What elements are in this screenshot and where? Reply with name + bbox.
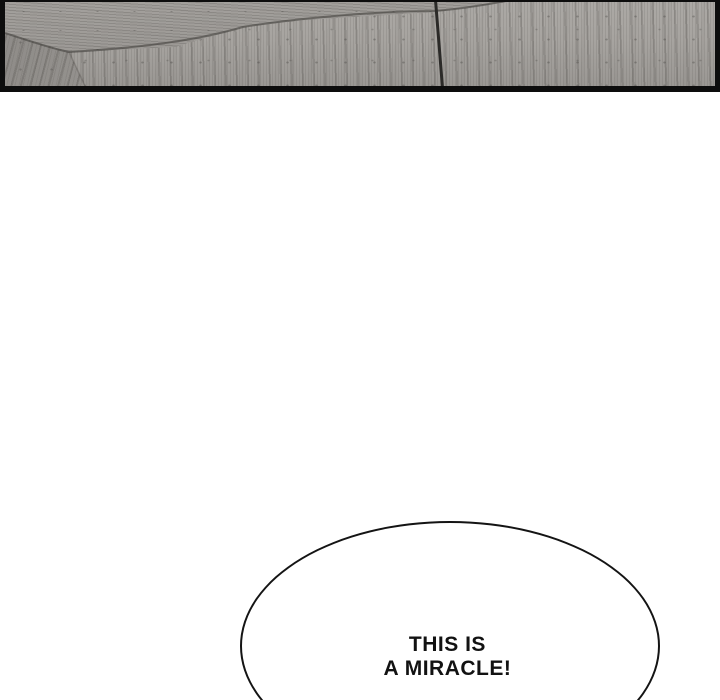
panel-line-art bbox=[5, 2, 715, 86]
ceiling-panel bbox=[0, 0, 720, 92]
wedge-edge-line bbox=[69, 52, 85, 86]
speech-text: THIS IS A MIRACLE! bbox=[384, 633, 512, 681]
comic-page: THIS IS A MIRACLE! bbox=[0, 0, 720, 700]
ceiling-photo bbox=[5, 2, 715, 86]
speech-bubble: THIS IS A MIRACLE! bbox=[240, 521, 660, 700]
cord-line bbox=[436, 2, 443, 86]
speech-text-line-2: A MIRACLE! bbox=[384, 657, 512, 681]
speech-text-line-1: THIS IS bbox=[384, 633, 512, 657]
